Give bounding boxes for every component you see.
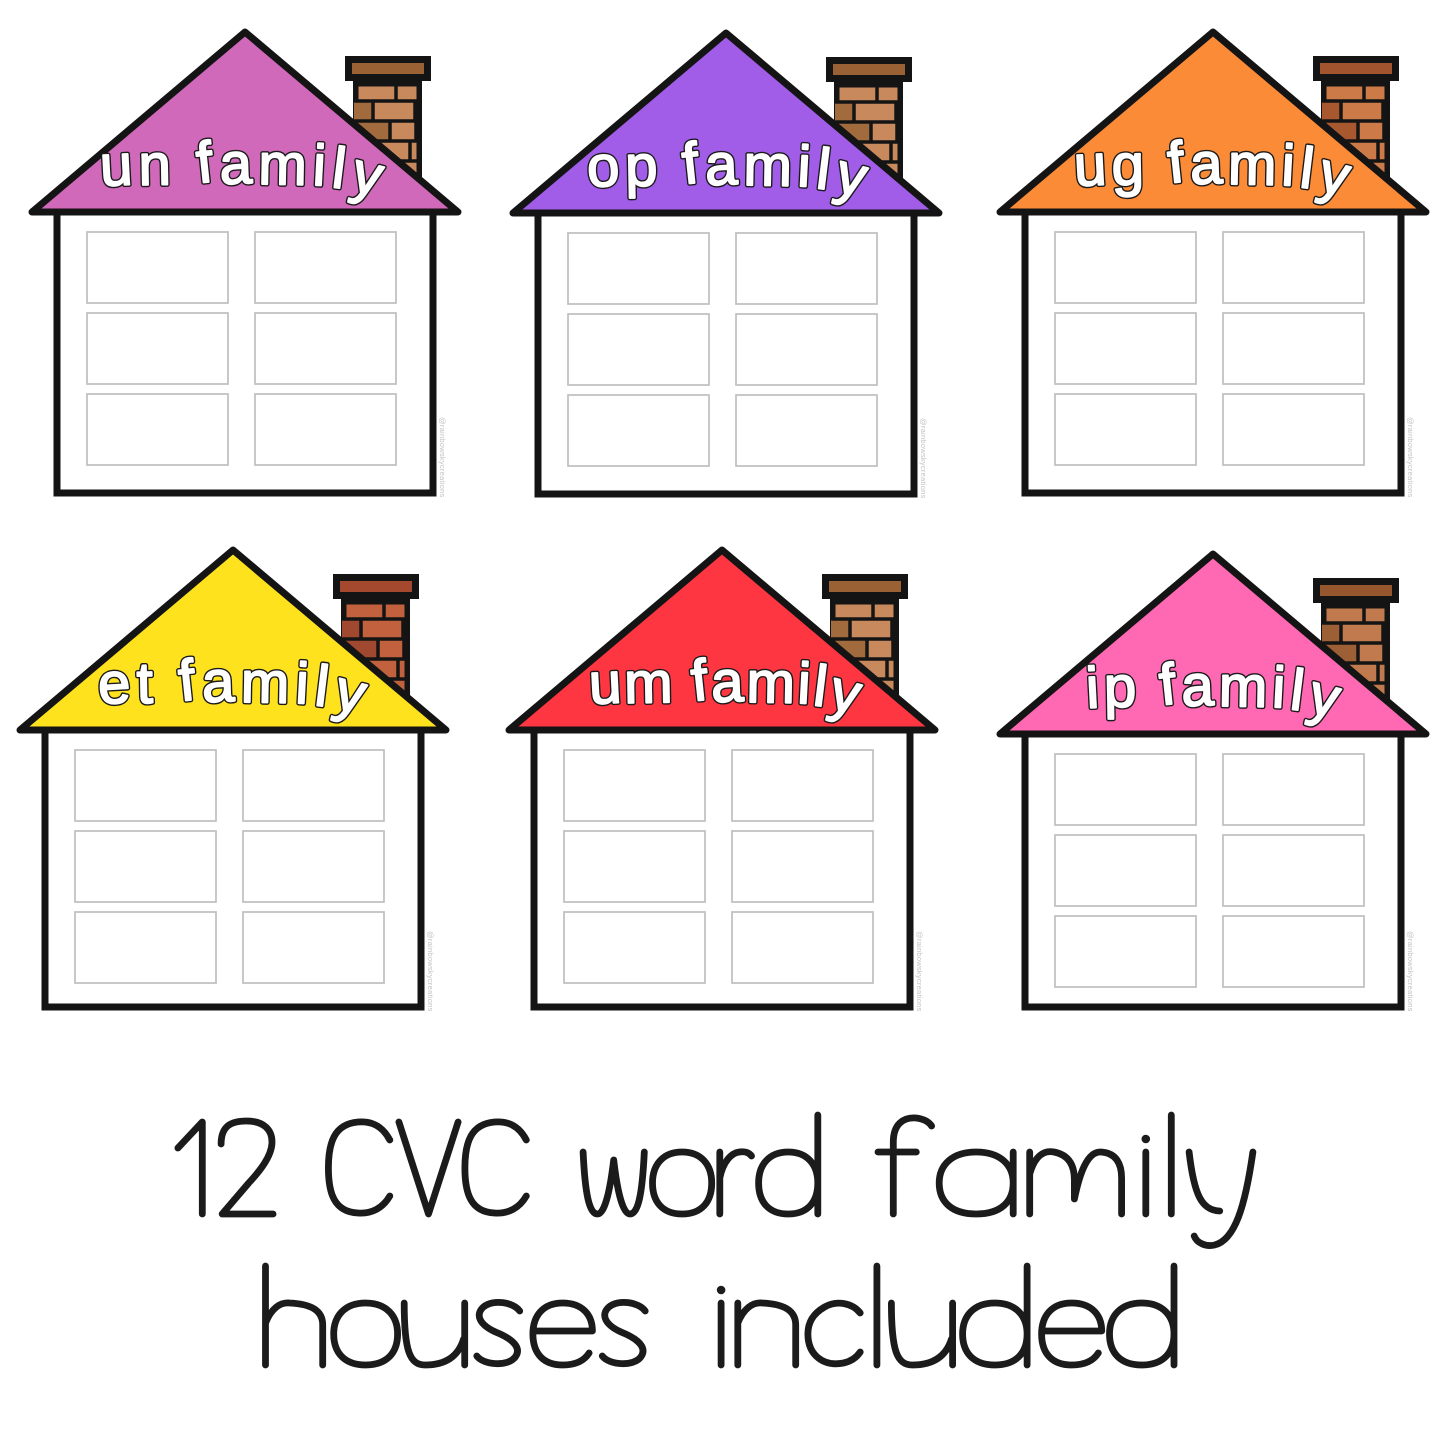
svg-text:@rainbowskycreations: @rainbowskycreations — [438, 417, 447, 498]
svg-text:@rainbowskycreations: @rainbowskycreations — [1406, 417, 1415, 498]
svg-text:@rainbowskycreations: @rainbowskycreations — [919, 418, 928, 499]
svg-text:@rainbowskycreations: @rainbowskycreations — [1406, 931, 1415, 1012]
svg-text:@rainbowskycreations: @rainbowskycreations — [426, 931, 435, 1012]
svg-text:@rainbowskycreations: @rainbowskycreations — [915, 931, 924, 1012]
